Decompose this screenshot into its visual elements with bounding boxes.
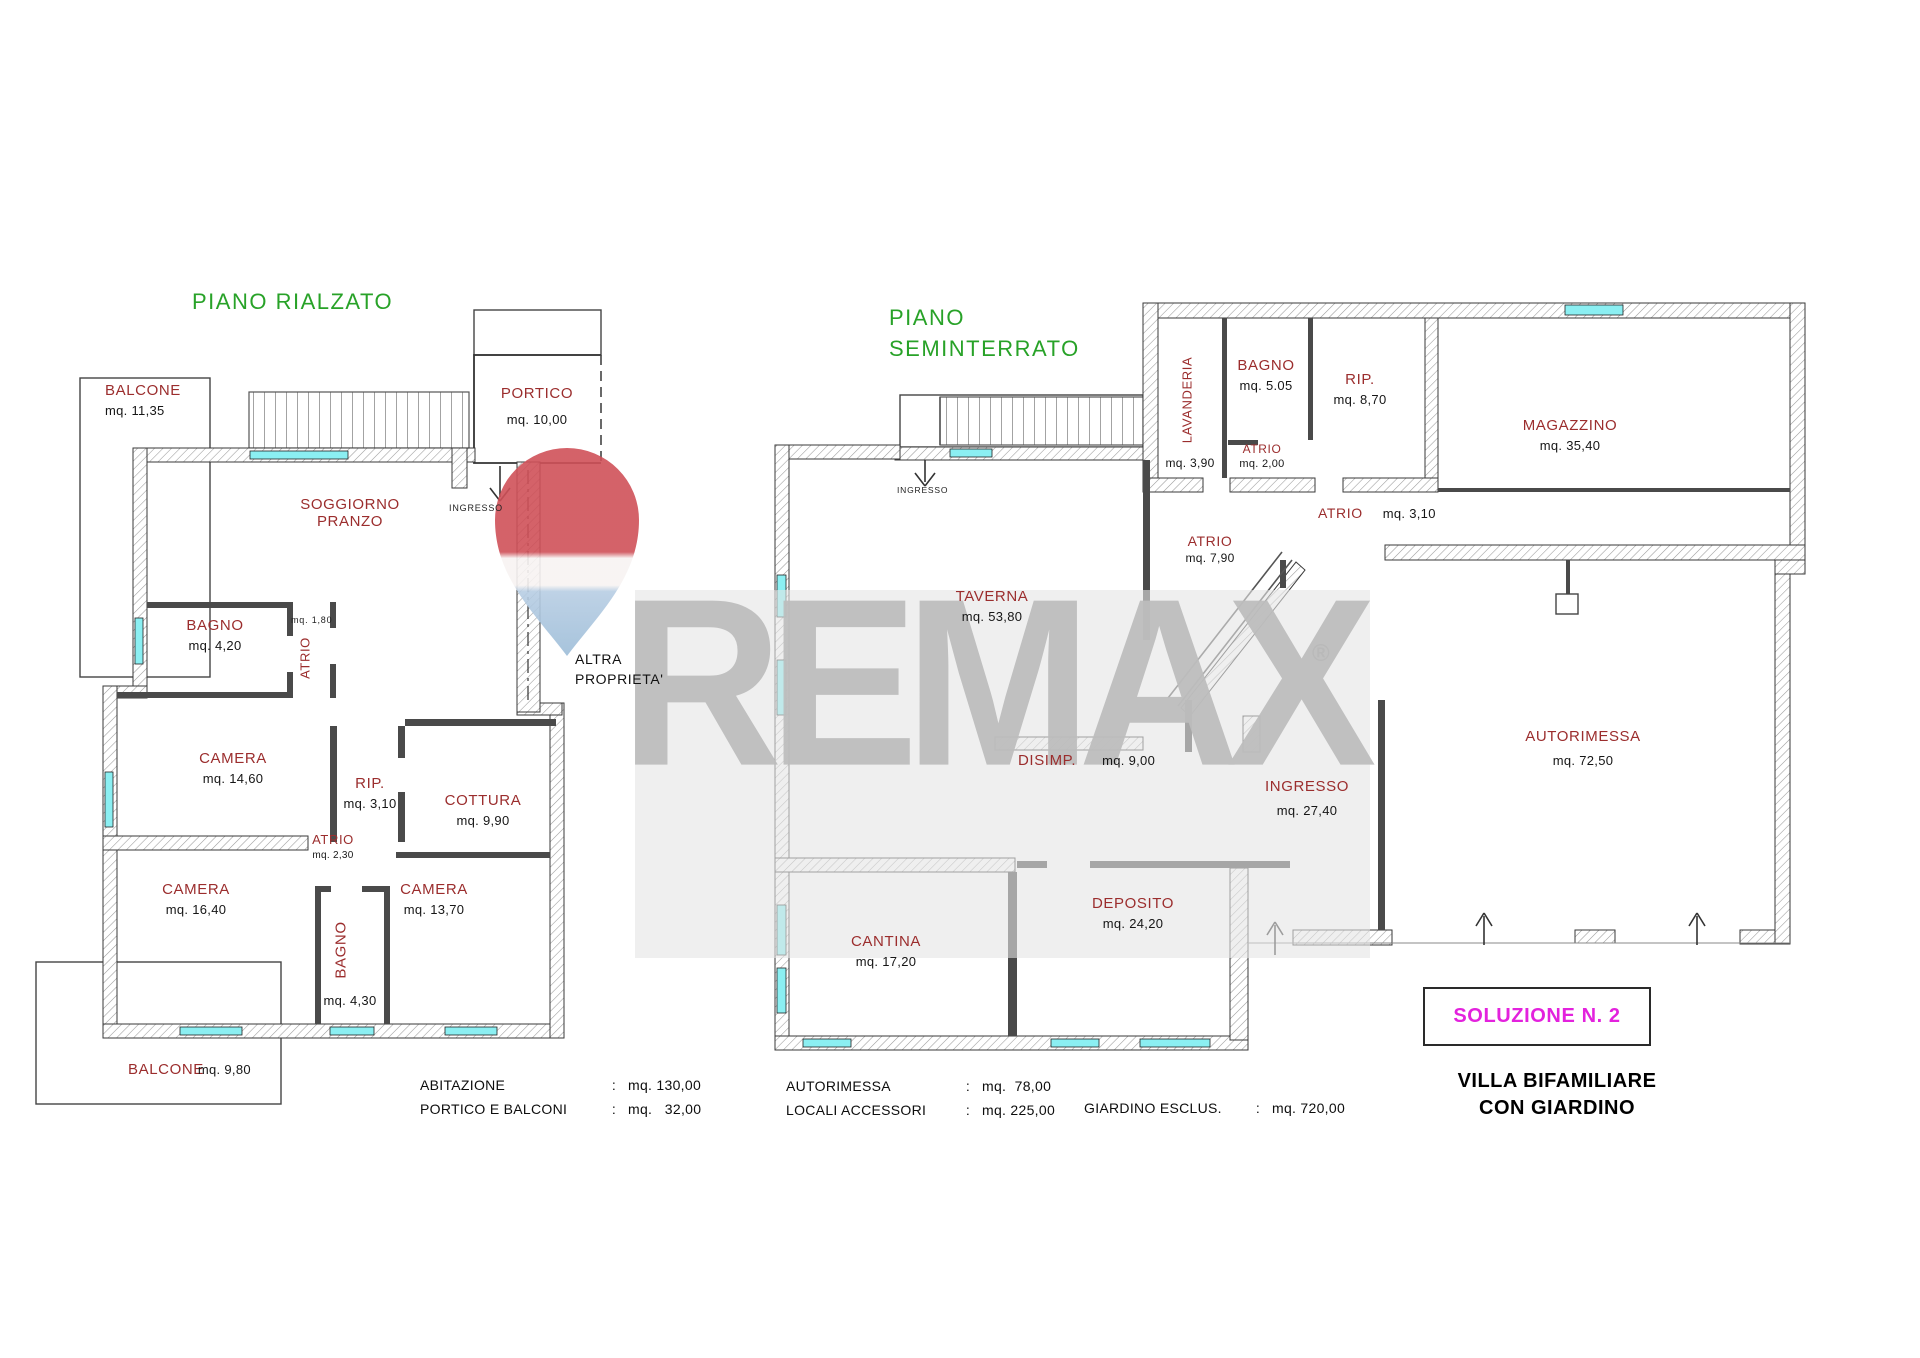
room-label-deposito: DEPOSITO mq. 24,20 (1092, 896, 1174, 931)
room-label-atrio790: ATRIO mq. 7,90 (1185, 534, 1234, 565)
label-ingresso-stairs: INGRESSO (897, 486, 948, 496)
plan-subtitle: VILLA BIFAMILIARE CON GIARDINO (1458, 1070, 1657, 1119)
solution-label: SOLUZIONE N. 2 (1453, 1005, 1620, 1028)
room-label-balcone-top: BALCONE mq. 11,35 (105, 383, 181, 418)
room-label-rip: RIP. mq. 3,10 (344, 776, 397, 811)
room-label-camera3: CAMERA mq. 13,70 (400, 882, 468, 917)
summary-row: PORTICO E BALCONI : mq. 32,00 (420, 1101, 701, 1117)
left-floor-title: PIANO RIALZATO (192, 290, 393, 315)
room-label-atrio2: ATRIO mq. 2,30 (312, 833, 354, 861)
room-label-balcone-bottom: BALCONE mq. 9,80 (128, 1062, 251, 1079)
room-label-cantina: CANTINA mq. 17,20 (851, 934, 921, 969)
room-label-atrio310: ATRIO mq. 3,10 (1318, 506, 1436, 522)
room-label-bagno2: BAGNO (334, 921, 351, 978)
label-altra-proprieta: ALTRA PROPRIETA' (575, 652, 664, 687)
room-label-ingresso-right: INGRESSO mq. 27,40 (1265, 779, 1349, 818)
area-label-bagno2: mq. 4,30 (324, 994, 377, 1009)
right-floor-title: PIANO SEMINTERRATO (889, 306, 1080, 361)
room-label-disimp: DISIMP. mq. 9,00 (1018, 753, 1155, 770)
garden-summary: GIARDINO ESCLUS. : mq. 720,00 (1084, 1100, 1345, 1124)
solution-box: SOLUZIONE N. 2 (1423, 987, 1651, 1046)
summary-row: AUTORIMESSA : mq. 78,00 (786, 1078, 1055, 1094)
room-label-atrio-small: ATRIO mq. 2,00 (1239, 443, 1284, 471)
room-label-bagno: BAGNO mq. 4,20 (186, 618, 243, 653)
room-label-atrio1: ATRIO (299, 637, 314, 679)
room-label-soggiorno: SOGGIORNO PRANZO (300, 497, 400, 531)
room-label-camera1: CAMERA mq. 14,60 (199, 751, 267, 786)
summary-row: LOCALI ACCESSORI : mq. 225,00 (786, 1102, 1055, 1118)
room-label-bagno-right: BAGNO mq. 5.05 (1237, 358, 1294, 393)
floorplan-canvas: REMAX ® PIANO RIALZATO BALCONE mq. 11,35… (0, 0, 1920, 1358)
room-label-autorimessa: AUTORIMESSA mq. 72,50 (1525, 729, 1641, 768)
left-plan-summary: ABITAZIONE : mq. 130,00 PORTICO E BALCON… (420, 1077, 701, 1125)
right-plan-summary: AUTORIMESSA : mq. 78,00 LOCALI ACCESSORI… (786, 1078, 1055, 1126)
room-label-lavanderia: LAVANDERIA (1181, 357, 1196, 443)
area-label-atrio1: mq. 1,80 (291, 615, 332, 625)
area-label-lavanderia: mq. 3,90 (1165, 455, 1214, 470)
label-ingresso-left: INGRESSO (449, 503, 503, 513)
room-label-cottura: COTTURA mq. 9,90 (445, 793, 522, 828)
room-label-taverna: TAVERNA mq. 53,80 (956, 589, 1029, 624)
summary-row: ABITAZIONE : mq. 130,00 (420, 1077, 701, 1093)
room-label-camera2: CAMERA mq. 16,40 (162, 882, 230, 917)
summary-row: GIARDINO ESCLUS. : mq. 720,00 (1084, 1100, 1345, 1116)
room-label-magazzino: MAGAZZINO mq. 35,40 (1523, 418, 1618, 453)
room-label-portico: PORTICO mq. 10,00 (501, 386, 573, 427)
room-label-rip-right: RIP. mq. 8,70 (1334, 372, 1387, 407)
